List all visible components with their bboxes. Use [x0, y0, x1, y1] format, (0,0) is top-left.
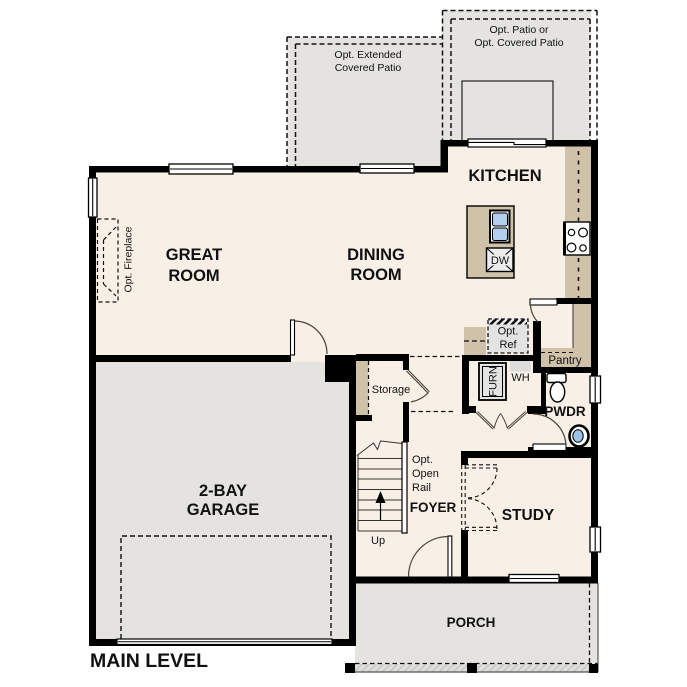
svg-text:DW: DW	[491, 255, 510, 267]
svg-text:Opt. Patio or: Opt. Patio or	[490, 24, 549, 36]
svg-text:GARAGE: GARAGE	[187, 501, 259, 519]
svg-text:Rail: Rail	[412, 482, 431, 494]
svg-text:Opt. Fireplace: Opt. Fireplace	[123, 226, 135, 292]
svg-text:Storage: Storage	[372, 384, 411, 396]
svg-text:KITCHEN: KITCHEN	[468, 167, 541, 185]
svg-text:ROOM: ROOM	[350, 266, 401, 284]
svg-text:Covered Patio: Covered Patio	[335, 62, 402, 74]
svg-text:STUDY: STUDY	[502, 507, 555, 524]
svg-text:Ref: Ref	[499, 339, 517, 351]
svg-text:DINING: DINING	[347, 246, 405, 264]
svg-text:MAIN LEVEL: MAIN LEVEL	[90, 650, 208, 672]
svg-text:FOYER: FOYER	[410, 500, 457, 515]
svg-text:Open: Open	[412, 468, 439, 480]
svg-text:Opt. Covered Patio: Opt. Covered Patio	[474, 37, 563, 49]
svg-text:Pantry: Pantry	[548, 355, 581, 367]
svg-text:Up: Up	[371, 535, 385, 547]
svg-text:Opt.: Opt.	[498, 326, 519, 338]
svg-text:WH: WH	[511, 372, 529, 384]
svg-text:PWDR: PWDR	[544, 404, 585, 419]
svg-text:2-BAY: 2-BAY	[199, 482, 247, 500]
svg-text:FURN: FURN	[488, 366, 500, 397]
svg-text:ROOM: ROOM	[168, 267, 219, 285]
svg-text:PORCH: PORCH	[447, 615, 496, 630]
svg-text:Opt. Extended: Opt. Extended	[334, 49, 401, 61]
svg-text:Opt.: Opt.	[412, 454, 433, 466]
svg-text:GREAT: GREAT	[166, 246, 223, 264]
